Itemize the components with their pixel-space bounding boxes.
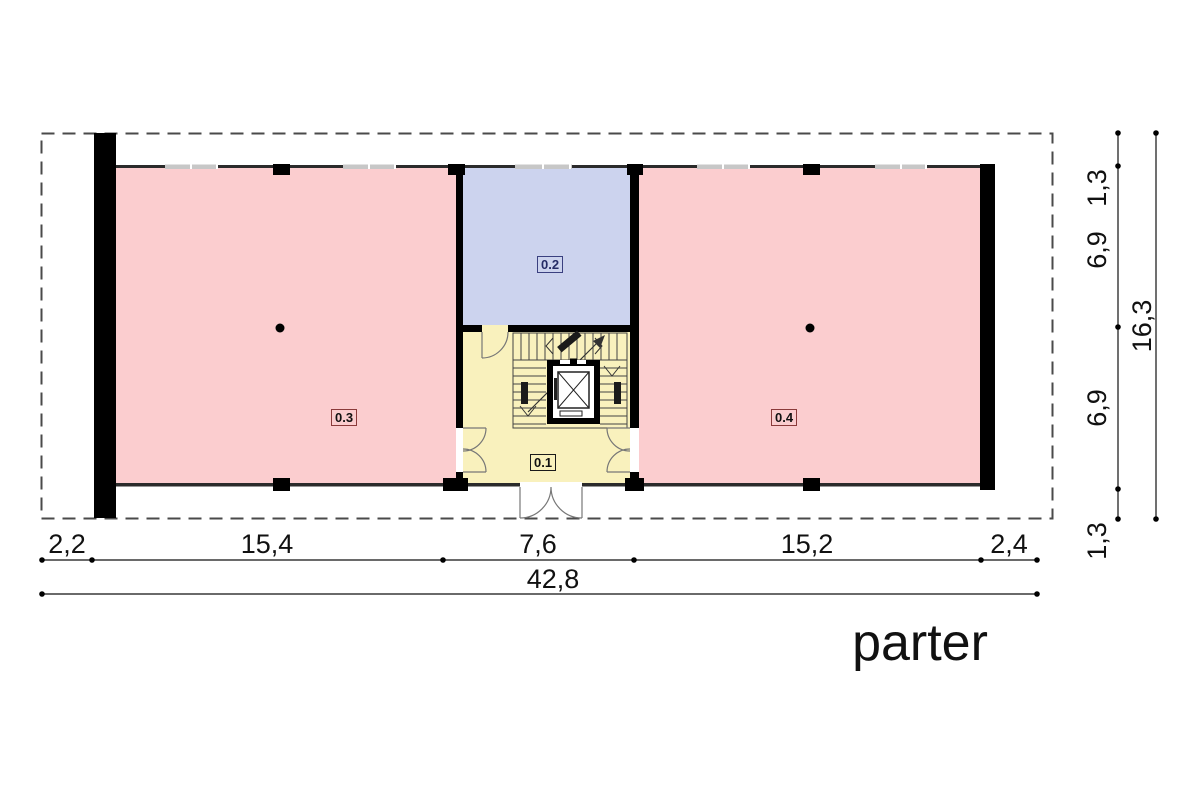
- room-01-label: 0.1: [530, 454, 556, 471]
- core-right-wall: [630, 168, 639, 428]
- left-gable-wall: [94, 133, 116, 518]
- room-02-label: 0.2: [537, 256, 563, 273]
- dim-bottom-seg-5: 2,4: [990, 530, 1028, 558]
- elevator-guide-rail: [554, 378, 557, 400]
- elevator-door-tick: [570, 359, 577, 366]
- dim-bottom-seg-1: 2,2: [48, 530, 86, 558]
- room-04-label: 0.4: [771, 409, 797, 426]
- dim-right-seg-3: 6,9: [1083, 389, 1111, 427]
- dim-bottom-total: 42,8: [527, 565, 580, 593]
- room-03-floor: [116, 168, 456, 483]
- room-02-floor: [463, 168, 630, 325]
- core-mid-wall-right: [508, 325, 630, 332]
- room-04-column-dot: [806, 324, 815, 333]
- dim-right-total: 16,3: [1128, 300, 1156, 353]
- room-03-label: 0.3: [331, 409, 357, 426]
- dim-right-seg-2: 6,9: [1083, 231, 1111, 269]
- room-03-column-dot: [276, 324, 285, 333]
- drawing-title: parter: [852, 616, 988, 670]
- floor-plan-canvas: 0.1 0.2 0.3 0.4 2,2 15,4 7,6 15,2 2,4 42…: [0, 0, 1200, 800]
- core-left-wall: [456, 168, 463, 428]
- dim-right-seg-1: 1,3: [1083, 169, 1111, 207]
- main-entrance: [520, 482, 582, 518]
- dim-bottom-seg-4: 15,2: [781, 530, 834, 558]
- dim-bottom-seg-2: 15,4: [241, 530, 294, 558]
- dim-right-seg-4: 1,3: [1083, 522, 1111, 560]
- core-mid-wall-left: [463, 325, 482, 332]
- elevator: [547, 359, 600, 425]
- entrance-double-door: [520, 487, 582, 518]
- floor-plan-drawing: [0, 0, 1200, 800]
- right-exterior-wall: [980, 164, 995, 490]
- dim-bottom-seg-3: 7,6: [519, 530, 557, 558]
